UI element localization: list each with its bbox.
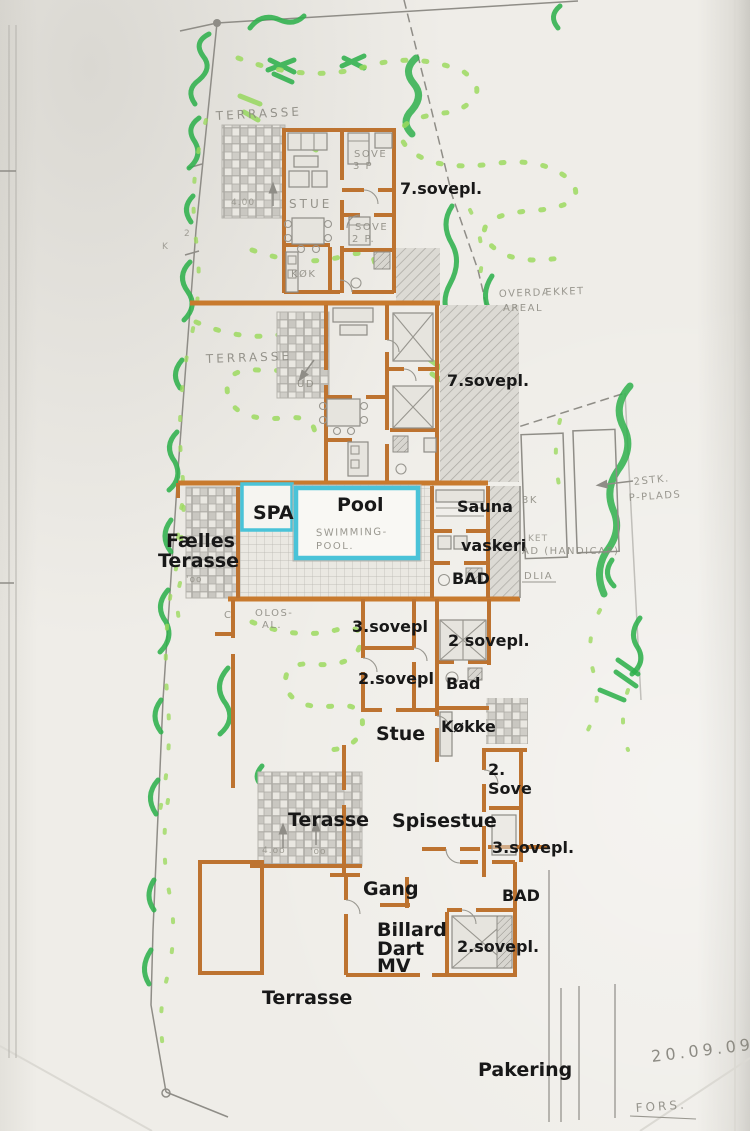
hw-sove2p-1: SOVE: [355, 222, 388, 233]
label-stue: Stue: [376, 723, 425, 745]
label-vaskeri: vaskeri: [461, 536, 526, 555]
label-bad-pool: BAD: [452, 569, 490, 588]
label-7sovepl-top: 7.sovepl.: [400, 179, 482, 198]
label-2sovepl-right: 2 sovepl.: [448, 631, 530, 650]
hw-overdaekket-2: AREAL: [503, 303, 543, 314]
driveway-lines: [549, 870, 615, 1122]
hw-swimming-2: POOL.: [316, 541, 354, 552]
label-gang: Gang: [363, 878, 419, 900]
label-7sovepl-mid: 7.sovepl.: [447, 371, 529, 390]
hw-fors: FORS.: [635, 1097, 687, 1115]
label-terrasse-bottom: Terrasse: [262, 987, 352, 1009]
hw-pplads: P-PLADS: [628, 489, 681, 504]
hw-mark-2: 2: [184, 229, 191, 239]
label-faelles-2: Terasse: [158, 550, 239, 572]
label-3sovepl-a: 3.sovepl: [352, 617, 428, 636]
label-2sove-1: 2.: [488, 760, 505, 779]
hw-stue: STUE: [289, 197, 332, 211]
label-spa: SPA: [253, 502, 294, 524]
hw-dlia: DLIA: [524, 571, 553, 582]
hw-olos-1: OLOS-: [255, 608, 293, 619]
label-pakering: Pakering: [478, 1059, 572, 1081]
label-terasse-mid: Terasse: [288, 809, 369, 831]
label-faelles-1: Fælles: [166, 530, 235, 552]
hw-koek: KØK: [291, 268, 317, 280]
annex-building: [200, 862, 262, 973]
middle-house: [190, 303, 519, 482]
hw-3k: 3K: [522, 495, 538, 506]
hw-dim-bot-2: 'oo: [310, 847, 327, 857]
label-billard-3: MV: [377, 955, 411, 977]
label-spisestue: Spisestue: [392, 810, 497, 832]
label-bad-lower: BAD: [502, 886, 540, 905]
hw-overdaekket-1: OVERDÆKKET: [499, 286, 585, 300]
hw-dim-mid: 'oo: [186, 575, 203, 585]
hw-c-mark: C: [224, 610, 232, 621]
hw-dim-top: 4.00: [231, 198, 255, 208]
label-sauna: Sauna: [457, 497, 513, 516]
label-bad-small: Bad: [446, 674, 480, 693]
hw-sove2p-2: 2 P.: [352, 234, 375, 245]
hw-handicap: AD (HANDICAP): [522, 546, 619, 557]
hw-ket: KET: [528, 534, 548, 544]
scanned-site-plan: 7.sovepl. 7.sovepl. SPA Pool Sauna vaske…: [0, 0, 750, 1131]
hw-sove3p-1: SOVE: [354, 149, 387, 160]
hw-terrasse-top: TERRASSE: [214, 105, 302, 124]
hw-swimming-1: SWIMMING-: [316, 527, 388, 539]
hw-2stk: 2STK.: [633, 473, 670, 488]
hw-sove3p-2: 3 P: [353, 161, 373, 172]
hw-olos-2: AL.: [262, 620, 282, 631]
label-pool: Pool: [337, 494, 384, 516]
label-2sovepl-a: 2.sovepl: [358, 669, 434, 688]
hw-dim-bot-1: 4.oo: [262, 846, 286, 856]
label-koekken: Køkke: [441, 717, 496, 736]
label-2sove-2: Sove: [488, 779, 532, 798]
hw-ud: UD: [297, 379, 315, 390]
hw-mark-k: K: [162, 242, 169, 252]
overdaekket-areal-hatch: [440, 305, 519, 482]
label-3sovepl-b: 3.sovepl.: [492, 838, 574, 857]
label-2sovepl-b: 2.sovepl.: [457, 937, 539, 956]
top-house: [222, 125, 440, 302]
